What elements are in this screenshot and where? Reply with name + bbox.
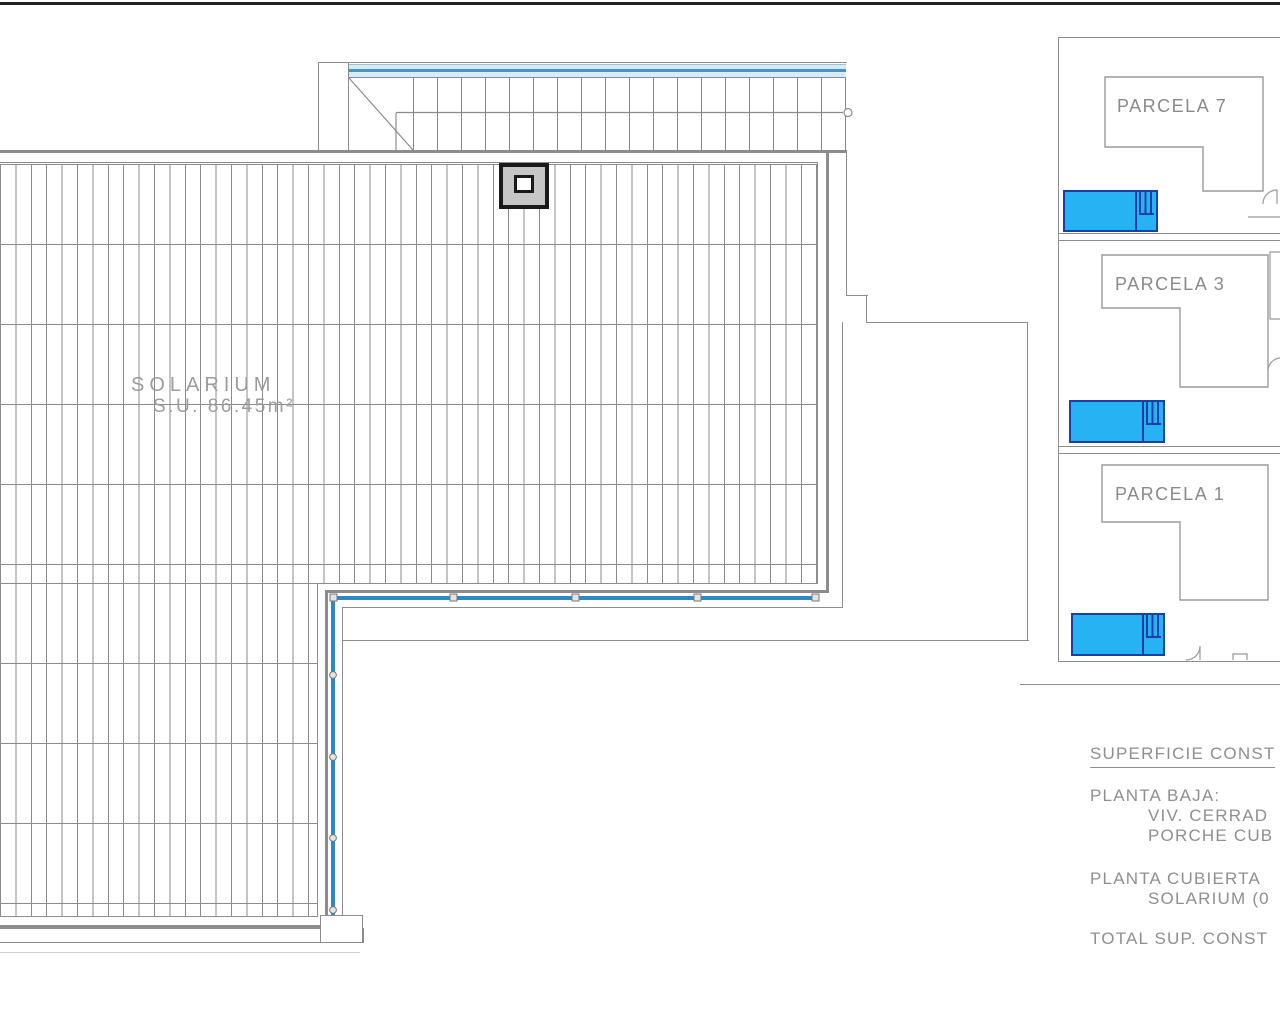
pool-divider-line: [1135, 192, 1137, 230]
railing-post-square: [694, 594, 701, 601]
railing-post-square: [812, 594, 819, 601]
railing-post-square: [450, 594, 457, 601]
railing-post-circle: [330, 672, 337, 679]
summary-planta-cubierta: PLANTA CUBIERTA: [1090, 869, 1261, 889]
sidebar-top-border: [1058, 37, 1280, 38]
sidebar-left-border: [1058, 37, 1059, 662]
roof-plan-drawing: SOLARIUM S.U. 86.45m²: [0, 0, 1280, 1024]
parcela7-house-outline: [1105, 77, 1263, 191]
parcel-separator-line: [1058, 233, 1280, 234]
linework-overlay: [0, 0, 1280, 1024]
parcela3-label: PARCELA 3: [1115, 274, 1225, 295]
summary-total: TOTAL SUP. CONST: [1090, 929, 1268, 949]
parcela1-door-swing: [1186, 646, 1200, 660]
railing-post-square: [572, 594, 579, 601]
parcel-separator-line: [1058, 446, 1280, 447]
sidebar-bottom-border: [1058, 661, 1280, 662]
railing-post-circle: [330, 754, 337, 761]
summary-viv-cerrada: VIV. CERRAD: [1148, 806, 1268, 826]
parcela7-label: PARCELA 7: [1117, 96, 1227, 117]
parcela3-door-swing: [1268, 358, 1280, 371]
railing-post-square: [330, 594, 337, 601]
railing-post-circle: [330, 835, 337, 842]
railing-posts: [330, 594, 819, 913]
summary-title: SUPERFICIE CONST: [1090, 744, 1275, 768]
pool-steps: [1139, 192, 1154, 215]
parcela7-pool: [1063, 190, 1158, 232]
parcela1-edge-detail: [1233, 654, 1247, 660]
stair-center-line-end-circle: [844, 109, 852, 117]
summary-porche: PORCHE CUB: [1148, 826, 1273, 846]
pool-divider-line: [1142, 402, 1144, 441]
pool-divider-line: [1142, 615, 1144, 654]
parcela1-label: PARCELA 1: [1115, 484, 1225, 505]
pool-steps: [1146, 615, 1161, 638]
road-line: [1020, 684, 1280, 685]
parcel-separator-line: [1058, 240, 1280, 241]
parcela1-pool: [1071, 613, 1165, 656]
parcela3-pool: [1069, 400, 1165, 443]
summary-planta-baja: PLANTA BAJA:: [1090, 786, 1220, 806]
parcela3-edge-structure: [1270, 252, 1280, 319]
summary-solarium-item: SOLARIUM (0: [1148, 889, 1270, 909]
stair-diagonal-line: [349, 78, 413, 150]
railing-post-circle: [330, 907, 337, 914]
parcel-separator-line: [1058, 453, 1280, 454]
parcela7-door-swing: [1263, 190, 1277, 204]
pool-steps: [1146, 402, 1161, 425]
